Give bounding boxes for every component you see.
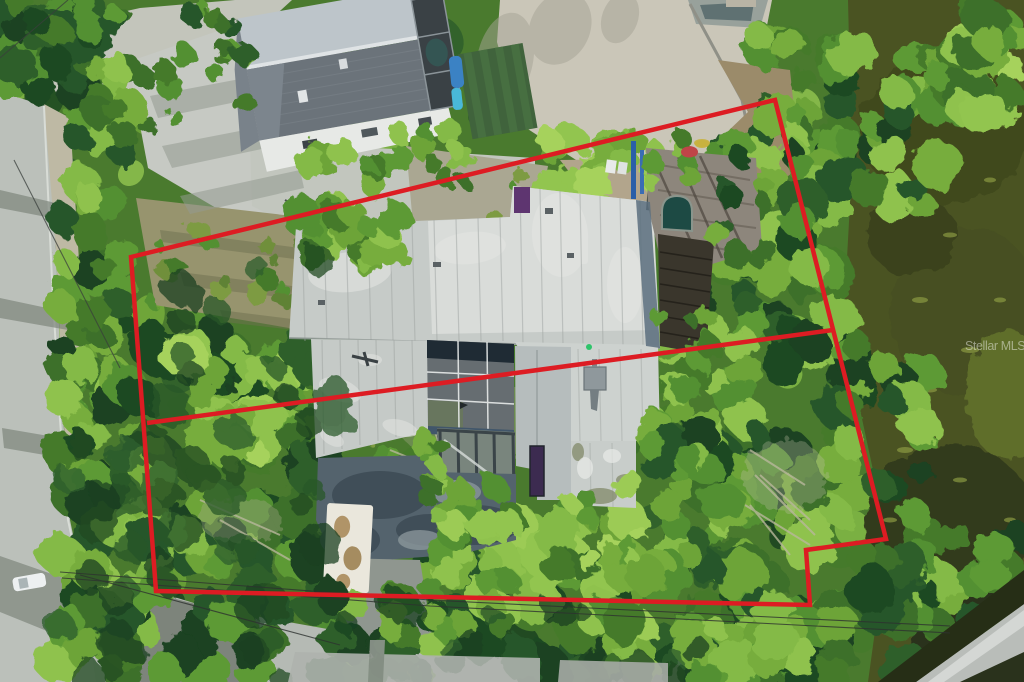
svg-text:Stellar MLS: Stellar MLS (965, 339, 1024, 353)
